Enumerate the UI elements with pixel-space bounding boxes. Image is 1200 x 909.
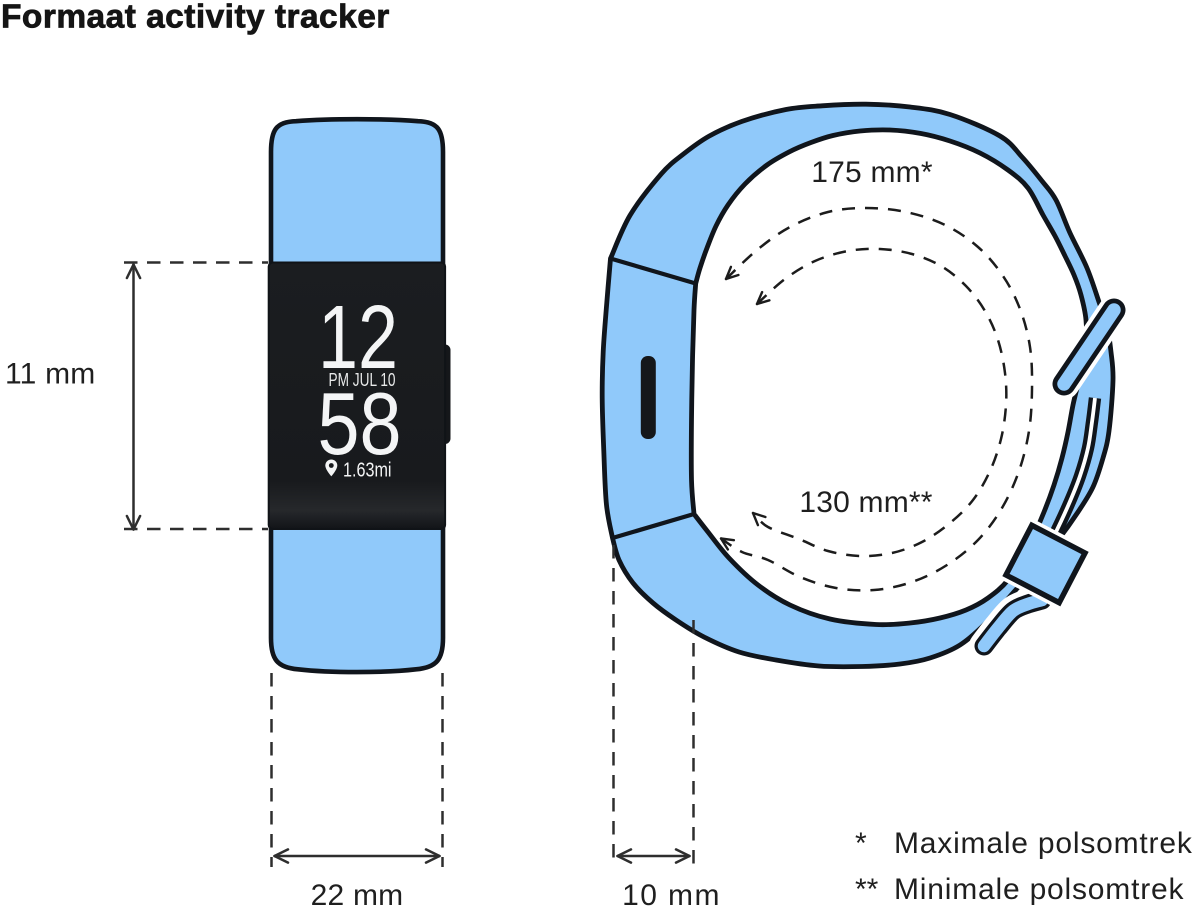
svg-text:11 mm: 11 mm (5, 358, 95, 391)
svg-text:1.63mi: 1.63mi (343, 459, 392, 482)
svg-text:**: ** (855, 873, 879, 906)
svg-text:*: * (855, 827, 867, 860)
svg-text:175 mm*: 175 mm* (811, 156, 933, 189)
svg-text:Maximale polsomtrek: Maximale polsomtrek (894, 827, 1193, 860)
svg-text:22 mm: 22 mm (311, 879, 404, 909)
svg-text:130 mm**: 130 mm** (799, 486, 932, 519)
svg-text:10 mm: 10 mm (622, 879, 721, 909)
svg-text:Minimale polsomtrek: Minimale polsomtrek (894, 873, 1184, 906)
svg-text:Formaat activity tracker: Formaat activity tracker (1, 0, 390, 36)
